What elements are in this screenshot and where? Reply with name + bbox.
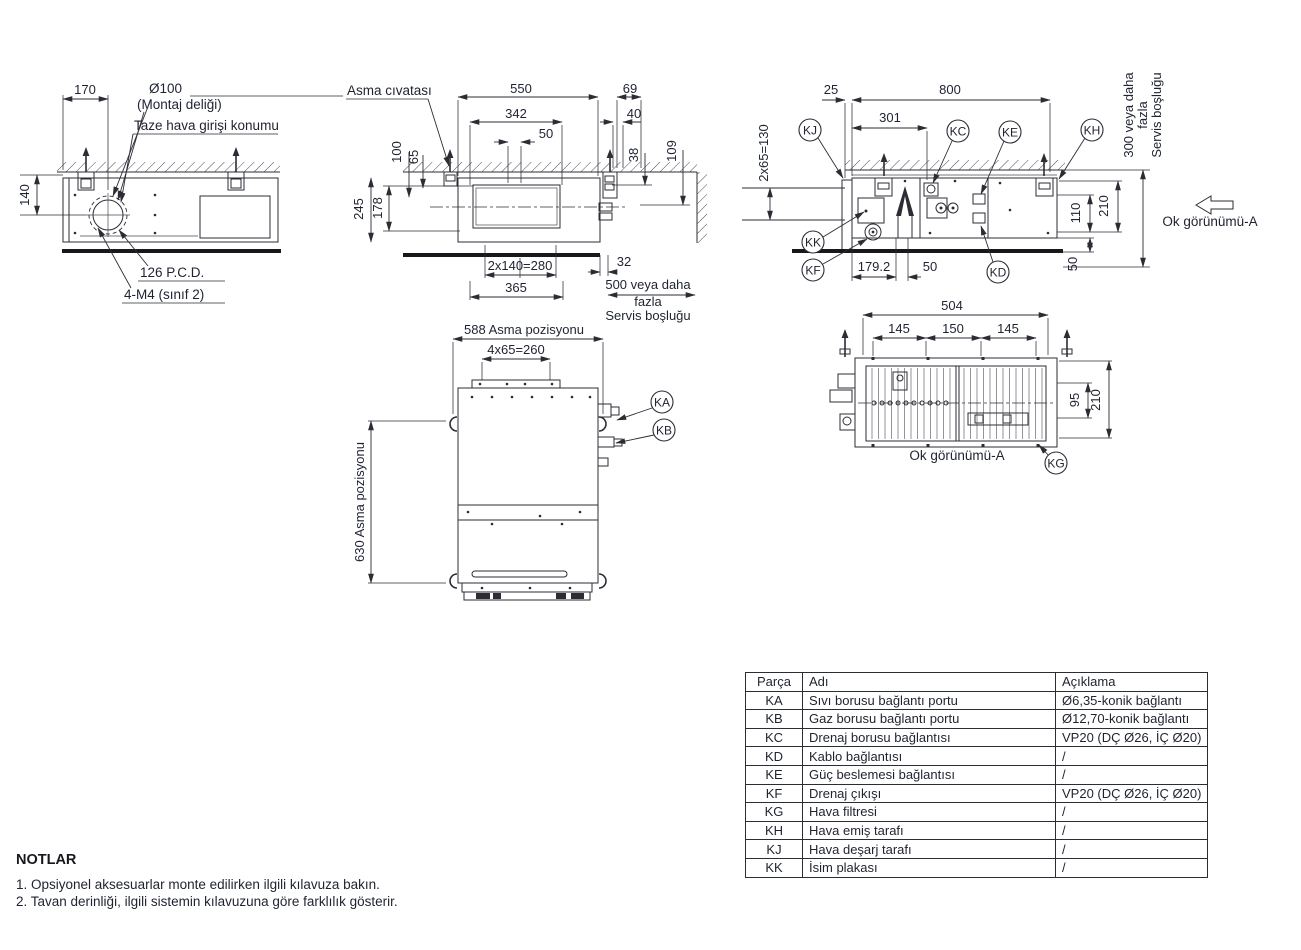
cable-terminal xyxy=(973,213,985,223)
part-desc: Ø12,70-konik bağlantı xyxy=(1056,710,1208,729)
col-header-desc: Açıklama xyxy=(1056,673,1208,692)
dim-label: 245 xyxy=(351,198,366,220)
svg-text:KC: KC xyxy=(950,125,967,139)
note-item: 2. Tavan derinliği, ilgili sistemin kıla… xyxy=(16,894,398,911)
dim-label: 38 xyxy=(626,148,641,162)
pipe-stub xyxy=(599,213,612,220)
hole-note-label: (Montaj deliği) xyxy=(137,97,222,112)
part-desc: / xyxy=(1056,765,1208,784)
hole-dia-label: Ø100 xyxy=(149,81,182,96)
table-row: KG Hava filtresi / xyxy=(746,803,1208,822)
pipe-stub xyxy=(838,374,855,388)
connection-view: 25 800 301 2x65=130 179.2 50 110 210 50 … xyxy=(742,72,1258,283)
hanger-hook xyxy=(599,417,606,431)
service-clearance-label: Servis boşluğu xyxy=(605,308,690,323)
view-a-bottom: 504 145 150 145 95 210 Ok görünümü-A KG xyxy=(830,298,1112,474)
part-name: Gaz borusu bağlantı portu xyxy=(803,710,1056,729)
dim-label: 365 xyxy=(505,280,527,295)
fan-section xyxy=(896,186,914,216)
parts-table: Parça Adı Açıklama KA Sıvı borusu bağlan… xyxy=(745,672,1208,878)
dim-label: 65 xyxy=(406,150,421,164)
side-view: 170 140 Ø100 (Montaj deliği) Taze hava g… xyxy=(17,81,343,303)
dim-label: 630 Asma pozisyonu xyxy=(352,442,367,562)
dim-label: 2x65=130 xyxy=(756,124,771,181)
hanger-bolt-right xyxy=(1062,329,1072,357)
hanger-hook xyxy=(599,574,606,588)
part-code: KB xyxy=(746,710,803,729)
dim-label: 100 xyxy=(389,141,404,163)
dim-label: 210 xyxy=(1088,389,1103,411)
dim-label: 95 xyxy=(1067,393,1082,407)
part-desc: / xyxy=(1056,747,1208,766)
part-name: İsim plakası xyxy=(803,858,1056,877)
table-header-row: Parça Adı Açıklama xyxy=(746,673,1208,692)
ceiling-hatch xyxy=(57,162,280,172)
fresh-air-label: Taze hava girişi konumu xyxy=(134,118,279,133)
part-name: Hava deşarj tarafı xyxy=(803,840,1056,859)
callout-kb: KB xyxy=(616,419,675,443)
part-desc: / xyxy=(1056,858,1208,877)
dim-label: 210 xyxy=(1096,195,1111,217)
part-desc: Ø6,35-konik bağlantı xyxy=(1056,691,1208,710)
table-row: KA Sıvı borusu bağlantı portu Ø6,35-koni… xyxy=(746,691,1208,710)
note-item: 1. Opsiyonel aksesuarlar monte edilirken… xyxy=(16,877,398,894)
dim-label: 40 xyxy=(627,106,641,121)
discharge-flange xyxy=(842,180,852,250)
notes-section: NOTLAR 1. Opsiyonel aksesuarlar monte ed… xyxy=(16,852,398,910)
service-clearance-label: Servis boşluğu xyxy=(1149,72,1164,157)
part-name: Güç beslemesi bağlantısı xyxy=(803,765,1056,784)
plan-view: 588 Asma pozisyonu 4x65=260 630 Asma poz… xyxy=(352,322,675,600)
hanger-hook xyxy=(450,574,457,588)
callout-kk: KK xyxy=(802,212,864,253)
part-name: Sıvı borusu bağlantı portu xyxy=(803,691,1056,710)
part-desc: / xyxy=(1056,821,1208,840)
part-code: KE xyxy=(746,765,803,784)
hanger-bracket-right xyxy=(1036,153,1053,196)
part-name: Drenaj çıkışı xyxy=(803,784,1056,803)
notes-title: NOTLAR xyxy=(16,852,398,868)
svg-text:KA: KA xyxy=(654,396,670,410)
dim-label: 32 xyxy=(617,254,631,269)
callout-kc: KC xyxy=(933,120,969,183)
svg-text:KK: KK xyxy=(805,236,821,250)
dim-label: 145 xyxy=(888,321,910,336)
table-row: KD Kablo bağlantısı / xyxy=(746,747,1208,766)
col-header-name: Adı xyxy=(803,673,1056,692)
dim-label: 50 xyxy=(539,126,553,141)
dim-label: 69 xyxy=(623,81,637,96)
part-code: KG xyxy=(746,803,803,822)
dim-label: 301 xyxy=(879,110,901,125)
table-row: KC Drenaj borusu bağlantısı VP20 (DÇ Ø26… xyxy=(746,728,1208,747)
part-name: Hava emiş tarafı xyxy=(803,821,1056,840)
dim-label: 145 xyxy=(997,321,1019,336)
callout-ka: KA xyxy=(617,391,673,420)
svg-text:KF: KF xyxy=(805,264,820,278)
slot xyxy=(472,571,567,577)
svg-text:KJ: KJ xyxy=(803,124,817,138)
part-code: KF xyxy=(746,784,803,803)
dim-label: 2x140=280 xyxy=(488,258,553,273)
dim-label: 170 xyxy=(74,82,96,97)
dim-label: 4x65=260 xyxy=(487,342,544,357)
liquid-pipe xyxy=(598,404,611,417)
view-a-label: Ok görünümü-A xyxy=(1162,214,1257,229)
gas-pipe xyxy=(598,437,614,447)
dim-label: 504 xyxy=(941,298,963,313)
svg-text:KE: KE xyxy=(1002,126,1018,140)
dim-label: 550 xyxy=(510,81,532,96)
service-clearance-label: 500 veya daha xyxy=(605,277,691,292)
svg-text:KB: KB xyxy=(656,424,672,438)
hanger-bolt-left xyxy=(840,329,850,357)
installation-drawing-page: 170 140 Ø100 (Montaj deliği) Taze hava g… xyxy=(0,0,1301,950)
pcd-label: 126 P.C.D. xyxy=(140,265,204,280)
col-header-part: Parça xyxy=(746,673,803,692)
hanger-hook xyxy=(450,417,457,431)
dim-label: 150 xyxy=(942,321,964,336)
view-a-label: Ok görünümü-A xyxy=(909,448,1004,463)
part-code: KJ xyxy=(746,840,803,859)
hanger-bolt-right xyxy=(599,149,617,220)
table-row: KJ Hava deşarj tarafı / xyxy=(746,840,1208,859)
dim-label: 50 xyxy=(1065,257,1080,271)
ceiling-hatch xyxy=(403,162,697,172)
part-desc: / xyxy=(1056,840,1208,859)
part-name: Hava filtresi xyxy=(803,803,1056,822)
dim-label: 342 xyxy=(505,106,527,121)
part-code: KA xyxy=(746,691,803,710)
pipe-stub xyxy=(840,414,855,430)
table-row: KB Gaz borusu bağlantı portu Ø12,70-koni… xyxy=(746,710,1208,729)
part-desc: VP20 (DÇ Ø26, İÇ Ø20) xyxy=(1056,728,1208,747)
part-code: KH xyxy=(746,821,803,840)
service-clearance-label: 300 veya daha xyxy=(1121,72,1136,158)
ceiling-hatch xyxy=(845,160,1065,170)
screw-label: 4-M4 (sınıf 2) xyxy=(124,287,204,302)
part-name: Drenaj borusu bağlantısı xyxy=(803,728,1056,747)
table-row: KK İsim plakası / xyxy=(746,858,1208,877)
svg-text:KD: KD xyxy=(990,266,1007,280)
table-row: KH Hava emiş tarafı / xyxy=(746,821,1208,840)
dim-label: 800 xyxy=(939,82,961,97)
dim-label: 25 xyxy=(824,82,838,97)
dim-label: 50 xyxy=(923,259,937,274)
part-name: Kablo bağlantısı xyxy=(803,747,1056,766)
table-row: KF Drenaj çıkışı VP20 (DÇ Ø26, İÇ Ø20) xyxy=(746,784,1208,803)
dim-label: 110 xyxy=(1068,203,1083,224)
technical-drawing: 170 140 Ø100 (Montaj deliği) Taze hava g… xyxy=(0,0,1301,660)
part-desc: VP20 (DÇ Ø26, İÇ Ø20) xyxy=(1056,784,1208,803)
wall-hatch xyxy=(697,172,707,243)
nameplate xyxy=(858,198,884,223)
dim-label: 178 xyxy=(370,197,385,219)
svg-text:KH: KH xyxy=(1084,124,1101,138)
air-outlet-opening xyxy=(473,185,560,228)
dim-label: 179.2 xyxy=(858,259,891,274)
unit-body xyxy=(458,388,598,583)
hanger-bolt-label: Asma cıvatası xyxy=(347,83,432,98)
pipe-stub xyxy=(830,390,852,402)
part-desc: / xyxy=(1056,803,1208,822)
power-terminal xyxy=(973,194,985,204)
dim-label: 140 xyxy=(17,184,32,206)
callout-kj: KJ xyxy=(799,119,843,178)
part-code: KC xyxy=(746,728,803,747)
duct-flange xyxy=(472,380,560,388)
table-row: KE Güç beslemesi bağlantısı / xyxy=(746,765,1208,784)
callout-kd: KD xyxy=(981,226,1009,283)
service-clearance-label: fazla xyxy=(634,294,662,309)
dim-label: 588 Asma pozisyonu xyxy=(464,322,584,337)
hanger-bracket-left xyxy=(875,153,892,196)
svg-text:KG: KG xyxy=(1047,457,1064,471)
callout-kg: KG xyxy=(1039,445,1067,474)
part-code: KK xyxy=(746,858,803,877)
service-clearance-label: fazla xyxy=(1135,101,1150,129)
part-code: KD xyxy=(746,747,803,766)
view-a-arrow-icon xyxy=(1196,196,1233,214)
dim-label: 109 xyxy=(664,140,679,162)
front-view: 550 69 342 40 50 100 65 38 109 245 178 2… xyxy=(346,81,707,323)
